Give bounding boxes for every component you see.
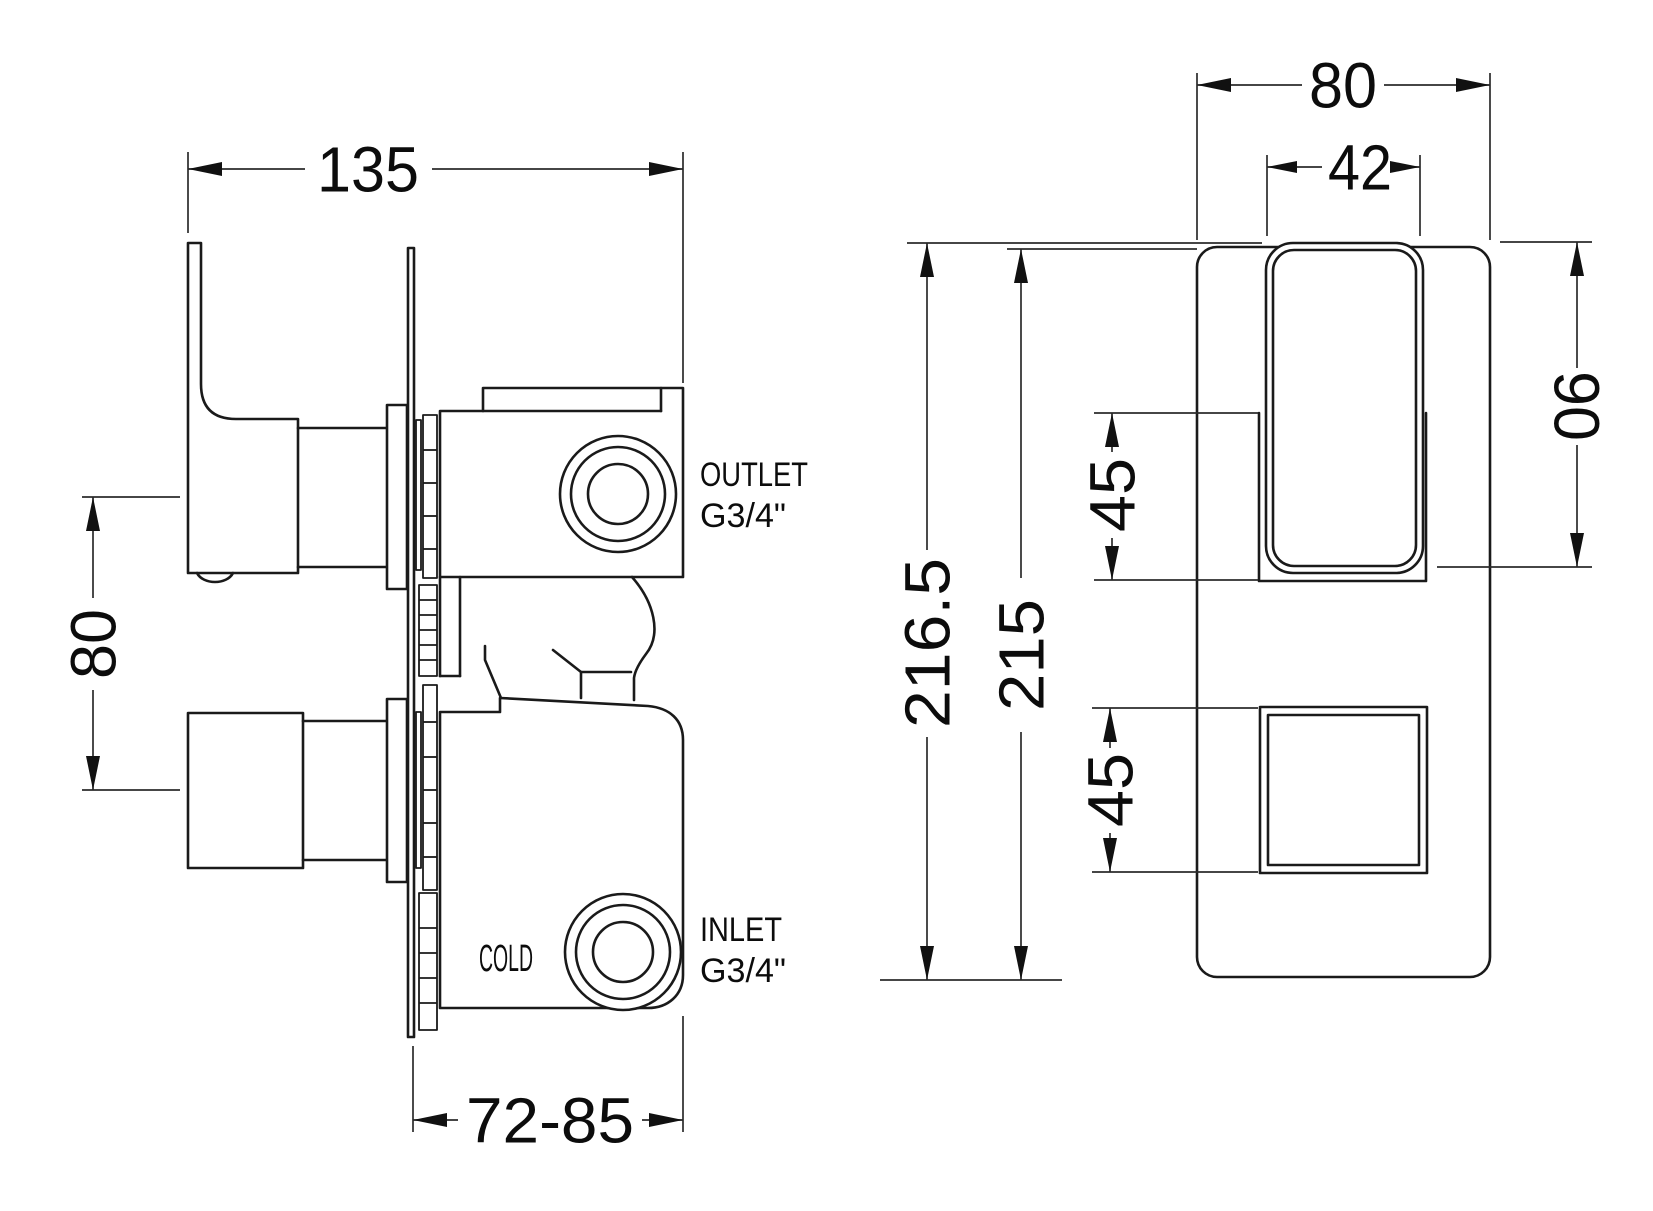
cold-marking: COLD	[479, 938, 533, 980]
side-diverter-knob	[188, 699, 407, 882]
side-lever-handle	[188, 243, 407, 589]
dim-45-recess-label: 45	[1076, 458, 1148, 532]
front-diverter-button	[1260, 707, 1427, 873]
front-lever-handle	[1266, 243, 1423, 573]
dim-72-85-label: 72-85	[466, 1084, 634, 1156]
dim-80-centres-label: 80	[57, 609, 129, 679]
side-upper-washer-stack	[416, 415, 437, 578]
technical-drawing-page: COLD OUTLET G3/4" INLET G3/4" 135	[0, 0, 1653, 1211]
dim-80-plate-label: 80	[1309, 49, 1377, 121]
outlet-label: OUTLET G3/4"	[700, 456, 808, 535]
dim-215-label: 215	[985, 599, 1057, 711]
dim-135-label: 135	[317, 133, 419, 205]
front-view: 80 42 216.5 215	[880, 49, 1613, 980]
dimension-42: 42	[1267, 131, 1420, 236]
inlet-label: INLET G3/4"	[700, 911, 786, 990]
side-mid-thread-stack	[419, 585, 437, 676]
outlet-label-line2: G3/4"	[700, 497, 786, 535]
side-lower-washer-stack	[416, 685, 437, 1030]
dim-42-label: 42	[1328, 131, 1392, 203]
dim-45-button-label: 45	[1074, 753, 1146, 827]
outlet-label-line1: OUTLET	[700, 456, 808, 494]
dimension-215: 215	[985, 249, 1197, 980]
dimension-135: 135	[188, 133, 683, 383]
technical-drawing: COLD OUTLET G3/4" INLET G3/4" 135	[0, 0, 1653, 1211]
dim-90-label: 90	[1541, 371, 1613, 441]
inlet-label-line2: G3/4"	[700, 952, 786, 990]
dimension-72-85: 72-85	[413, 1016, 683, 1156]
dim-216-5-label: 216.5	[891, 558, 963, 728]
side-view: COLD OUTLET G3/4" INLET G3/4" 135	[57, 133, 808, 1156]
side-plate-edge	[408, 248, 414, 1037]
side-outlet-port	[560, 436, 676, 552]
side-cartridge-funnel	[440, 577, 654, 700]
side-inlet-port	[565, 894, 681, 1010]
inlet-label-line1: INLET	[700, 911, 782, 949]
dimension-80-centres: 80	[57, 497, 180, 790]
